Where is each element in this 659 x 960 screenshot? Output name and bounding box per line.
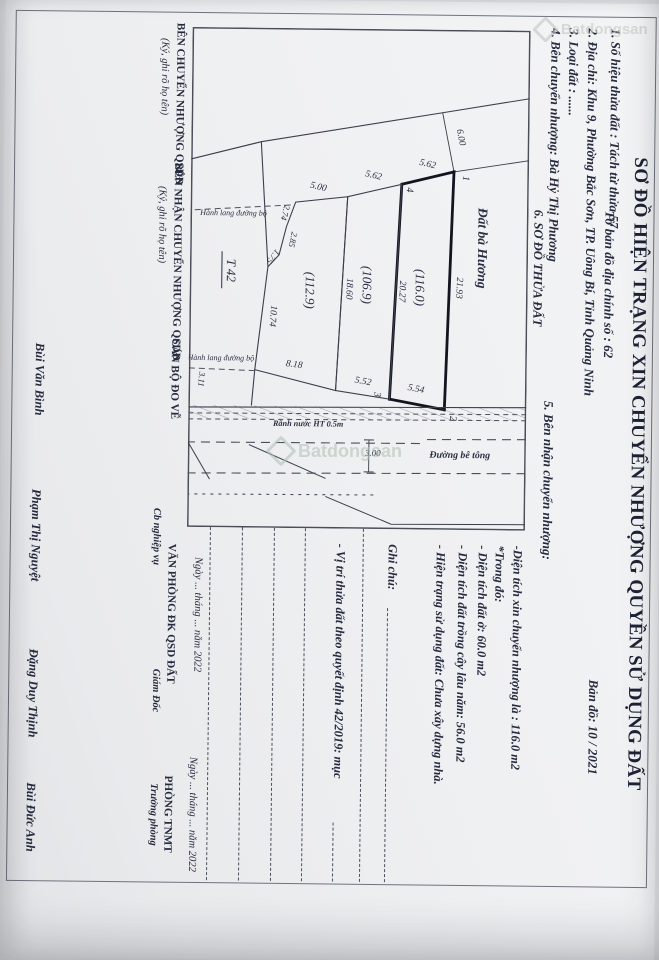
signer-name-surveyor: Bùi Văn Bình <box>31 327 47 431</box>
dim-311: 3.11 <box>196 370 207 387</box>
road-corridor-lines <box>188 203 290 370</box>
note-area-total: -Diện tích xin chuyển nhượng là : 116.0 … <box>507 545 525 770</box>
neighbor-boundary-lines <box>191 94 530 172</box>
scanned-land-document-photo: SƠ ĐỒ HIỆN TRẠNG XIN CHUYỂN NHƯỢNG QUYỀN… <box>0 0 659 960</box>
dim-2193: 21.93 <box>453 277 464 299</box>
vertex-3: 3 <box>371 390 382 396</box>
neighbor-label: Đất bà Hương <box>474 206 490 288</box>
sign-role-officer: Cb nghiệp vụ <box>150 492 162 580</box>
map-section-heading: 6. SƠ ĐỒ THỬA ĐẤT <box>529 209 545 326</box>
area-112: (112.9) <box>302 271 317 308</box>
dim-2027: 20.27 <box>396 280 407 303</box>
note-status: - Hiện trạng sử dụng đất: Chưa xây dựng … <box>430 544 448 784</box>
dim-274: 2.74 <box>278 203 292 221</box>
dim-554: 5.54 <box>406 383 424 396</box>
dim-1074: 10.74 <box>266 304 278 326</box>
area-106: (106.9) <box>359 265 374 303</box>
area-116: (116.0) <box>412 268 427 305</box>
road-width-label: 3.00 <box>363 447 380 457</box>
note-remark-heading: Ghi chú: <box>384 544 400 590</box>
sign-date-office: Ngày ... tháng ... năm 2022 <box>191 546 204 681</box>
sign-col-surveyor: CÁN BỘ ĐO VẼ <box>168 332 181 424</box>
transferor-line: 4. Bên chuyển nhượng: Bà Hỷ Thị Phương <box>544 27 563 261</box>
note-breakdown: *Trong đó: <box>491 545 507 602</box>
ruled-line <box>331 822 333 881</box>
dim-562-a: 5.62 <box>418 157 437 171</box>
sign-instruction-1: (Ký, ghi rõ họ tên) <box>158 22 170 130</box>
dim-500: 5.00 <box>309 180 328 194</box>
dim-562-b: 5.62 <box>364 169 383 183</box>
cadastral-sketch: Đất bà Hương 6.00 1 2 3 4 21.93 (116.0) … <box>186 26 530 530</box>
vertex-4: 4 <box>403 187 414 192</box>
note-location: - Vị trí thửa đất theo quyết định 42/201… <box>330 543 348 778</box>
parcel-number-line: 1. Số hiệu thửa đất : Tách từ thửa 57 <box>605 28 623 228</box>
road-label: Đường bê tông <box>428 449 490 461</box>
signer-name-officer: Phạm Thị Nguyệt <box>27 482 43 588</box>
plot-map-svg: Đất bà Hương 6.00 1 2 3 4 21.93 (116.0) … <box>186 26 530 530</box>
dim-600: 6.00 <box>453 128 466 147</box>
corridor-label-2: Hành lang đường bộ <box>186 352 253 362</box>
sign-col-registry-office: VĂN PHÒNG ĐK QSD ĐẤT <box>164 538 178 688</box>
road-center-lines <box>187 435 526 497</box>
ditch-label: Rãnh nước HT 0.5m <box>271 418 342 428</box>
south-boundary-lines <box>251 141 269 405</box>
sign-role-director: Giám Đốc <box>149 646 161 734</box>
signer-name-head: Bùi Đức Anh <box>22 765 38 869</box>
marker-t42: T 42 <box>223 258 238 282</box>
dim-1860: 18.60 <box>343 277 354 299</box>
map-sheet-number: Tờ bản đồ địa chính số : 62 <box>599 210 617 358</box>
sign-role-head: Trưởng phòng <box>147 766 159 862</box>
transferee-line: 5. Bên nhận chuyển nhượng: <box>538 400 556 559</box>
ditch-hatch <box>188 404 526 421</box>
sign-date-tnmt: Ngày ... tháng ... năm 2022 <box>185 746 198 881</box>
vertex-2: 2 <box>447 415 458 420</box>
vertex-1: 1 <box>459 175 470 180</box>
land-type-line: 3. Loại đất : ...... <box>564 28 581 116</box>
dim-552: 5.52 <box>353 375 371 388</box>
dim-285: 2.85 <box>286 231 299 249</box>
sign-col-tnmt: PHÒNG TNMT <box>160 746 174 881</box>
map-number: Bản đồ: 10 / 2021 <box>584 679 601 775</box>
signer-name-director: Đặng Duy Thịnh <box>24 640 40 746</box>
sign-col-transferee: BÊN NHẬN CHUYỂN NHƯỢNG QSDĐ <box>170 162 183 286</box>
note-perennial: - Diện tích đất trồng cây lâu năm: 56.0 … <box>452 544 469 762</box>
corridor-label-1: Hành lang đường bộ <box>199 207 267 217</box>
dim-818: 8.18 <box>285 359 303 371</box>
sign-instruction-2: (Ký, ghi rõ họ tên) <box>155 162 167 286</box>
note-residential: - Diện tích đất ở: 60.0 m2 <box>473 545 489 676</box>
document-paper: SƠ ĐỒ HIỆN TRẠNG XIN CHUYỂN NHƯỢNG QUYỀN… <box>0 0 659 960</box>
sign-col-transferor: BÊN CHUYỂN NHƯỢNG QSDĐ <box>173 22 186 130</box>
